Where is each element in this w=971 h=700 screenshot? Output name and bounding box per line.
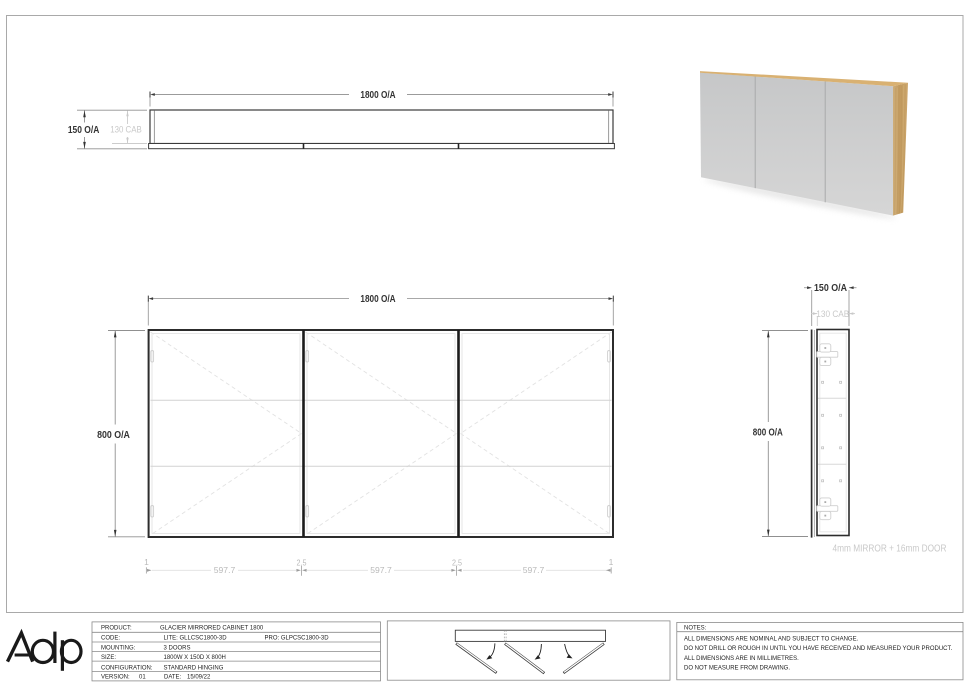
svg-text:SIZE:: SIZE: — [101, 655, 116, 661]
svg-text:PRO: GLPCSC1800-3D: PRO: GLPCSC1800-3D — [265, 636, 330, 642]
svg-text:ALL DIMENSIONS ARE IN MILLIMET: ALL DIMENSIONS ARE IN MILLIMETRES. — [684, 656, 799, 662]
svg-text:130 CAB: 130 CAB — [110, 124, 142, 134]
svg-text:1800W X 150D X 800H: 1800W X 150D X 800H — [164, 655, 226, 661]
svg-text:1800 O/A: 1800 O/A — [360, 90, 395, 101]
svg-text:2.5: 2.5 — [452, 557, 462, 567]
svg-text:NOTES:: NOTES: — [684, 625, 707, 631]
svg-text:597.7: 597.7 — [523, 565, 545, 575]
svg-text:DO NOT MEASURE FROM DRAWING.: DO NOT MEASURE FROM DRAWING. — [684, 666, 790, 672]
svg-text:1: 1 — [144, 557, 149, 567]
svg-text:800 O/A: 800 O/A — [753, 427, 783, 438]
svg-text:150 O/A: 150 O/A — [68, 125, 100, 136]
svg-text:MOUNTING:: MOUNTING: — [101, 645, 136, 651]
svg-text:GLACIER MIRRORED CABINET 1800: GLACIER MIRRORED CABINET 1800 — [160, 626, 264, 632]
svg-text:CONFIGURATION:: CONFIGURATION: — [101, 665, 153, 671]
svg-text:3 DOORS: 3 DOORS — [164, 645, 191, 651]
svg-text:1800 O/A: 1800 O/A — [360, 294, 395, 305]
svg-text:DO NOT DRILL OR ROUGH IN UNTIL: DO NOT DRILL OR ROUGH IN UNTIL YOU HAVE … — [684, 646, 952, 652]
svg-text:15/09/22: 15/09/22 — [187, 675, 211, 681]
svg-text:150 O/A: 150 O/A — [814, 283, 847, 294]
svg-text:VERSION:: VERSION: — [101, 675, 130, 681]
svg-text:STANDARD HINGING: STANDARD HINGING — [164, 665, 224, 671]
svg-text:597.7: 597.7 — [214, 565, 236, 575]
svg-text:1: 1 — [609, 557, 614, 567]
svg-text:2.5: 2.5 — [297, 557, 307, 567]
svg-text:LITE: GLLCSC1800-3D: LITE: GLLCSC1800-3D — [164, 636, 228, 642]
svg-text:ALL DIMENSIONS ARE NOMINAL AND: ALL DIMENSIONS ARE NOMINAL AND SUBJECT T… — [684, 636, 859, 642]
svg-text:597.7: 597.7 — [370, 565, 392, 575]
svg-text:DATE:: DATE: — [164, 675, 182, 681]
svg-text:PRODUCT:: PRODUCT: — [101, 626, 132, 632]
svg-text:4mm MIRROR + 16mm DOOR: 4mm MIRROR + 16mm DOOR — [833, 543, 947, 555]
svg-text:CODE:: CODE: — [101, 636, 120, 642]
svg-text:800 O/A: 800 O/A — [97, 430, 130, 441]
svg-text:130 CAB: 130 CAB — [816, 309, 849, 319]
svg-text:01: 01 — [139, 675, 146, 681]
